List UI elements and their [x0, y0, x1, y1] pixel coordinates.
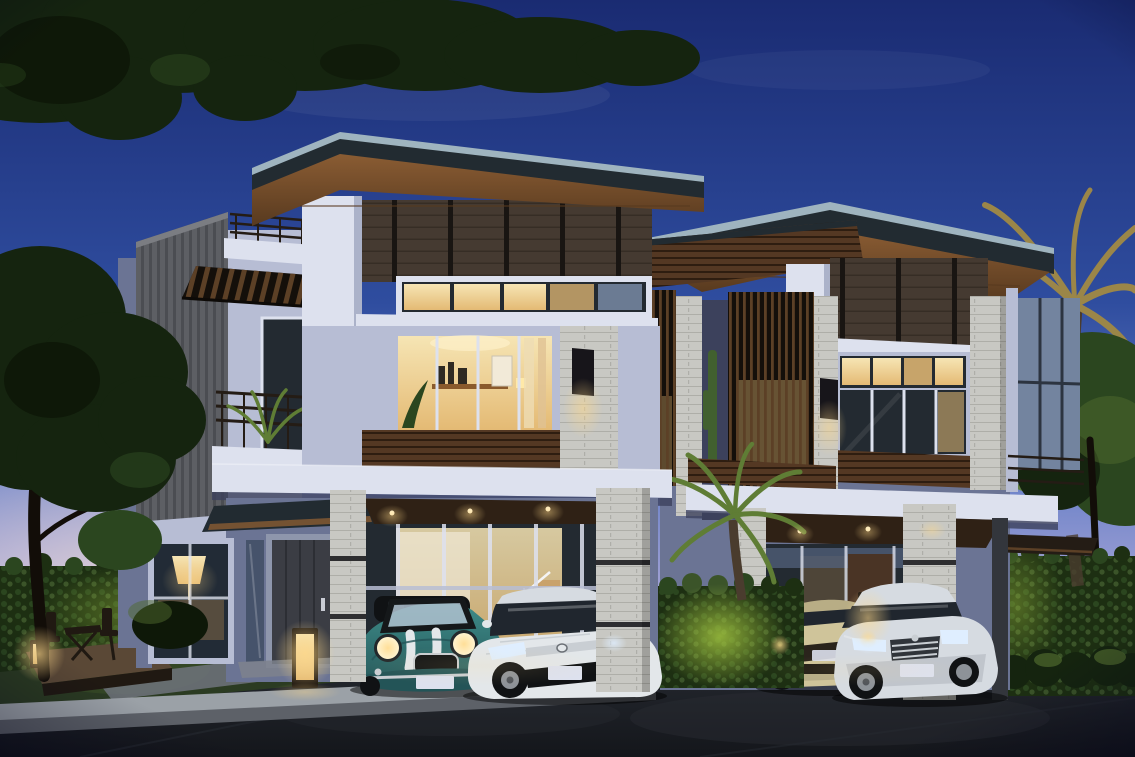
vignette [0, 0, 1135, 757]
architectural-rendering: Dusk architectural rendering of two mode… [0, 0, 1135, 757]
scene-canvas: Dusk architectural rendering of two mode… [0, 0, 1135, 757]
